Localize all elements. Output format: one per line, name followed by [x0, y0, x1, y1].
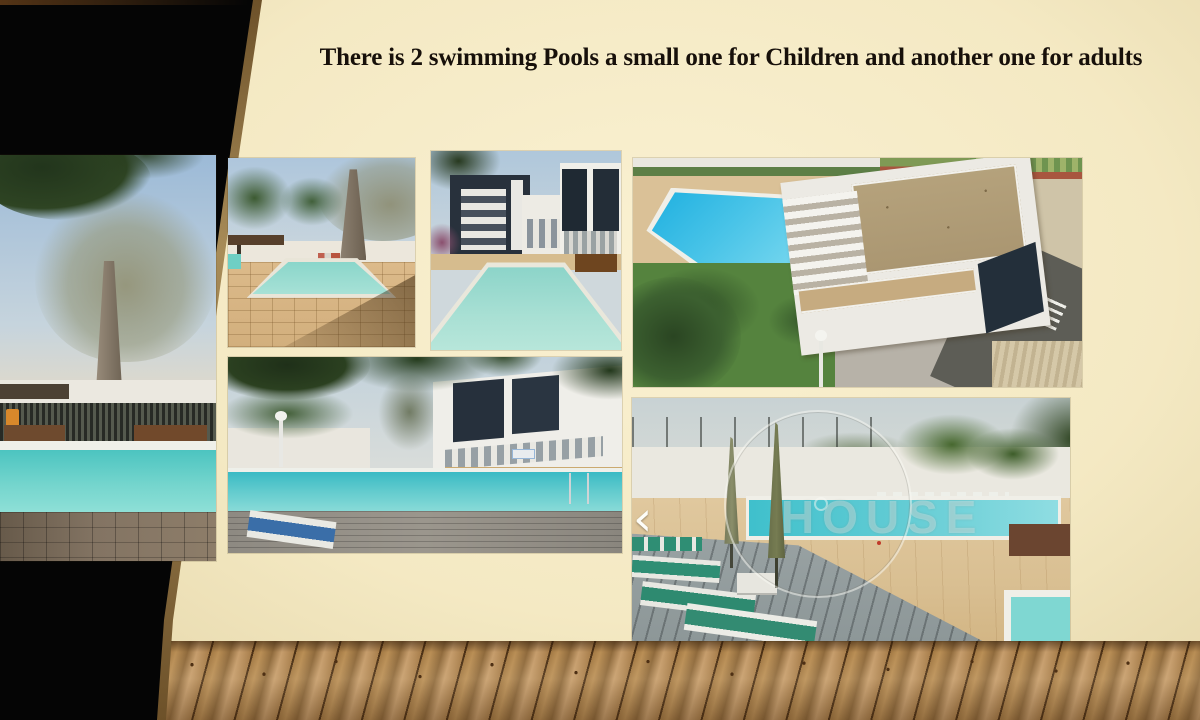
photo-pool-buildings: [431, 151, 621, 350]
wedge-top-trim: [0, 0, 248, 5]
wall-sign: [512, 449, 536, 459]
photo-aerial-pool-building: [633, 158, 1082, 387]
slide-background: There is 2 swimming Pools a small one fo…: [0, 0, 1200, 720]
photo-children-pool: [228, 158, 415, 347]
pool-deck: [0, 512, 216, 561]
clubhouse-building: [780, 158, 1051, 356]
dark-facade-panel: [562, 169, 587, 231]
pool-ladder: [569, 473, 589, 504]
pergola: [228, 235, 284, 244]
dark-facade-panel: [512, 375, 559, 434]
carousel-prev-icon[interactable]: ‹: [633, 495, 652, 543]
photo-long-pool: [228, 357, 622, 553]
watermark-text: HOUSE: [781, 490, 1070, 544]
lamp-globe: [815, 330, 827, 341]
dark-facade-panel: [593, 169, 620, 231]
pergola: [0, 384, 69, 398]
wood-bench: [575, 254, 617, 272]
balconies: [461, 189, 506, 249]
apartment-building: [450, 175, 530, 255]
glass-doors: [564, 231, 617, 255]
lamp-post: [279, 416, 283, 467]
photo-loungers-pool: HOUSE ‹: [632, 398, 1070, 641]
pool-water: [0, 450, 216, 513]
umbrella-pole: [730, 544, 733, 568]
roof-beams: [783, 191, 870, 295]
lamp-globe: [275, 411, 287, 421]
palm-tree: [965, 427, 1061, 480]
pool-water: [228, 472, 622, 512]
poolside-chairs: [318, 253, 340, 260]
lamp-post: [819, 337, 823, 387]
windows: [527, 219, 562, 249]
photo-tree-pool: [0, 155, 216, 561]
pool-corner: [228, 254, 241, 269]
dark-facade-panel: [453, 378, 504, 441]
slide-title: There is 2 swimming Pools a small one fo…: [262, 44, 1200, 72]
tree: [280, 177, 344, 226]
stone-wall: [992, 341, 1082, 387]
wood-floor-shading: [0, 641, 1200, 720]
small-pool-water: [1011, 597, 1070, 641]
